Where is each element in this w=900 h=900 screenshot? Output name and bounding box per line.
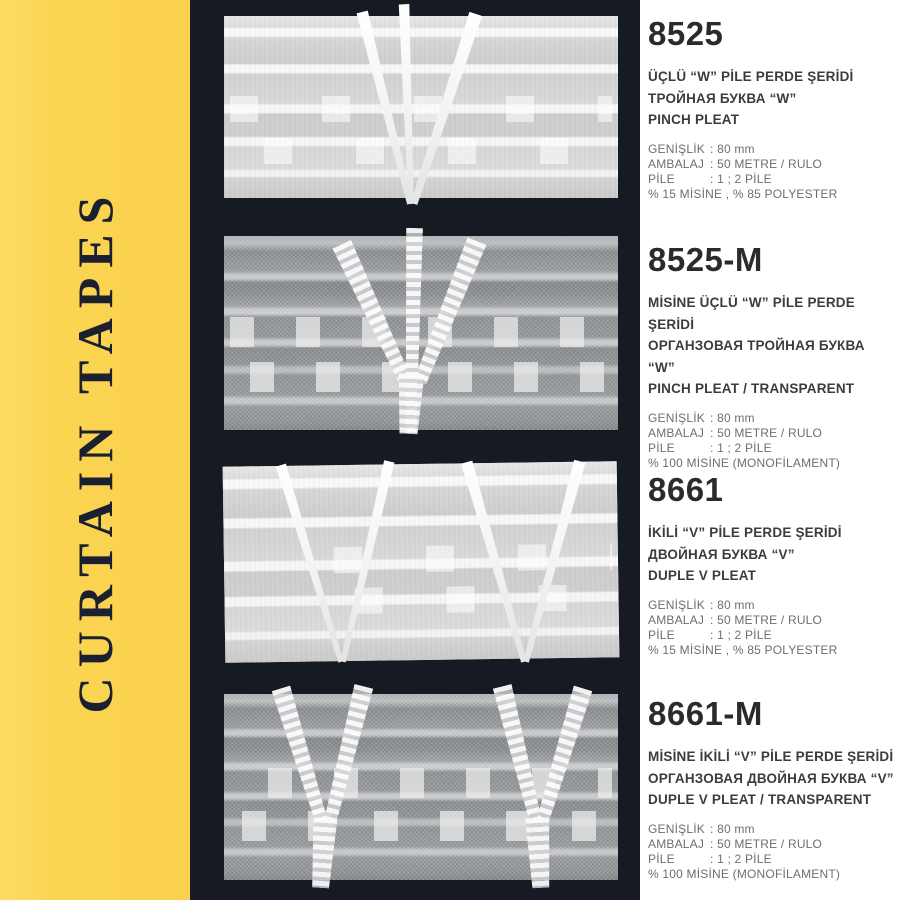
spec-value: : 1 ; 2 PİLE (710, 852, 894, 867)
product-name-en: PINCH PLEAT / TRANSPARENT (648, 378, 894, 400)
spec-table: GENİŞLİK : 80 mm AMBALAJ : 50 METRE / RU… (648, 142, 894, 202)
spec-row-pleat: PİLE : 1 ; 2 PİLE (648, 852, 894, 867)
product-name-en: PINCH PLEAT (648, 109, 894, 131)
spec-row-width: GENİŞLİK : 80 mm (648, 598, 894, 613)
spec-label: PİLE (648, 852, 710, 867)
spec-label: GENİŞLİK (648, 822, 710, 837)
tape-pocket-row (242, 811, 612, 841)
spec-value: : 50 METRE / RULO (710, 426, 894, 441)
product-name-tr: MİSİNE ÜÇLÜ “W” PİLE PERDE ŞERİDİ (648, 292, 894, 335)
spec-row-pleat: PİLE : 1 ; 2 PİLE (648, 441, 894, 456)
product-info-8661-m: 8661-M MİSİNE İKİLİ “V” PİLE PERDE ŞERİD… (648, 694, 894, 882)
spec-composition: % 100 MİSİNE (MONOFİLAMENT) (648, 867, 894, 882)
tape-photo-8661-m (224, 682, 618, 892)
spec-composition: % 15 MİSİNE , % 85 POLYESTER (648, 187, 894, 202)
product-info-8525: 8525 ÜÇLÜ “W” PİLE PERDE ŞERİDİ ТРОЙНАЯ … (648, 14, 894, 202)
catalog-page: CURTAIN TAPES (0, 0, 900, 900)
tape-pocket-row (354, 585, 612, 615)
tape-pocket-row (230, 317, 612, 347)
product-code: 8661 (648, 470, 894, 510)
product-info-8661: 8661 İKİLİ “V” PİLE PERDE ŞERİDİ ДВОЙНАЯ… (648, 470, 894, 658)
spec-row-width: GENİŞLİK : 80 mm (648, 822, 894, 837)
product-name-tr: MİSİNE İKİLİ “V” PİLE PERDE ŞERİDİ (648, 746, 894, 768)
spec-value: : 50 METRE / RULO (710, 157, 894, 172)
tape-pocket-row (230, 96, 612, 122)
spec-label: AMBALAJ (648, 613, 710, 628)
spec-value: : 80 mm (710, 411, 894, 426)
tape-photo-8525 (224, 2, 618, 210)
product-names: MİSİNE İKİLİ “V” PİLE PERDE ŞERİDİ ОРГАН… (648, 746, 894, 811)
product-name-ru: ОРГАНЗОВАЯ ТРОЙНАЯ БУКВА “W” (648, 335, 894, 378)
spec-label: GENİŞLİK (648, 411, 710, 426)
spec-value: : 1 ; 2 PİLE (710, 628, 894, 643)
page-title: CURTAIN TAPES (66, 187, 124, 714)
spec-label: GENİŞLİK (648, 142, 710, 157)
spec-value: : 80 mm (710, 598, 894, 613)
product-name-ru: ДВОЙНАЯ БУКВА “V” (648, 544, 894, 566)
product-name-ru: ТРОЙНАЯ БУКВА “W” (648, 88, 894, 110)
product-code: 8525 (648, 14, 894, 54)
spec-value: : 50 METRE / RULO (710, 613, 894, 628)
tape-pocket-row (334, 544, 612, 574)
spec-label: PİLE (648, 628, 710, 643)
tape-photo-8661 (224, 454, 618, 666)
tape-photo-8525-m (224, 228, 618, 436)
spec-row-pleat: PİLE : 1 ; 2 PİLE (648, 628, 894, 643)
spec-value: : 50 METRE / RULO (710, 837, 894, 852)
spec-composition: % 100 MİSİNE (MONOFİLAMENT) (648, 456, 894, 471)
spec-row-width: GENİŞLİK : 80 mm (648, 411, 894, 426)
spec-row-packaging: AMBALAJ : 50 METRE / RULO (648, 426, 894, 441)
product-names: ÜÇLÜ “W” PİLE PERDE ŞERİDİ ТРОЙНАЯ БУКВА… (648, 66, 894, 131)
product-code: 8661-M (648, 694, 894, 734)
spec-table: GENİŞLİK : 80 mm AMBALAJ : 50 METRE / RU… (648, 411, 894, 471)
spec-label: GENİŞLİK (648, 598, 710, 613)
product-names: MİSİNE ÜÇLÜ “W” PİLE PERDE ŞERİDİ ОРГАНЗ… (648, 292, 894, 400)
product-names: İKİLİ “V” PİLE PERDE ŞERİDİ ДВОЙНАЯ БУКВ… (648, 522, 894, 587)
product-name-en: DUPLE V PLEAT (648, 565, 894, 587)
product-name-tr: İKİLİ “V” PİLE PERDE ŞERİDİ (648, 522, 894, 544)
spec-value: : 1 ; 2 PİLE (710, 172, 894, 187)
spec-label: PİLE (648, 441, 710, 456)
tape-fabric (223, 461, 620, 662)
product-name-tr: ÜÇLÜ “W” PİLE PERDE ŞERİDİ (648, 66, 894, 88)
spec-label: AMBALAJ (648, 426, 710, 441)
product-name-en: DUPLE V PLEAT / TRANSPARENT (648, 789, 894, 811)
spec-label: AMBALAJ (648, 837, 710, 852)
spec-label: AMBALAJ (648, 157, 710, 172)
spec-row-width: GENİŞLİK : 80 mm (648, 142, 894, 157)
spec-row-packaging: AMBALAJ : 50 METRE / RULO (648, 157, 894, 172)
spec-value: : 1 ; 2 PİLE (710, 441, 894, 456)
spec-table: GENİŞLİK : 80 mm AMBALAJ : 50 METRE / RU… (648, 822, 894, 882)
spec-value: : 80 mm (710, 142, 894, 157)
spec-row-packaging: AMBALAJ : 50 METRE / RULO (648, 613, 894, 628)
product-name-ru: ОРГАНЗОВАЯ ДВОЙНАЯ БУКВА “V” (648, 768, 894, 790)
spec-row-packaging: AMBALAJ : 50 METRE / RULO (648, 837, 894, 852)
spec-value: : 80 mm (710, 822, 894, 837)
spec-label: PİLE (648, 172, 710, 187)
product-code: 8525-M (648, 240, 894, 280)
spec-composition: % 15 MİSİNE , % 85 POLYESTER (648, 643, 894, 658)
product-info-8525-m: 8525-M MİSİNE ÜÇLÜ “W” PİLE PERDE ŞERİDİ… (648, 240, 894, 471)
spec-table: GENİŞLİK : 80 mm AMBALAJ : 50 METRE / RU… (648, 598, 894, 658)
sidebar: CURTAIN TAPES (0, 0, 190, 900)
spec-row-pleat: PİLE : 1 ; 2 PİLE (648, 172, 894, 187)
